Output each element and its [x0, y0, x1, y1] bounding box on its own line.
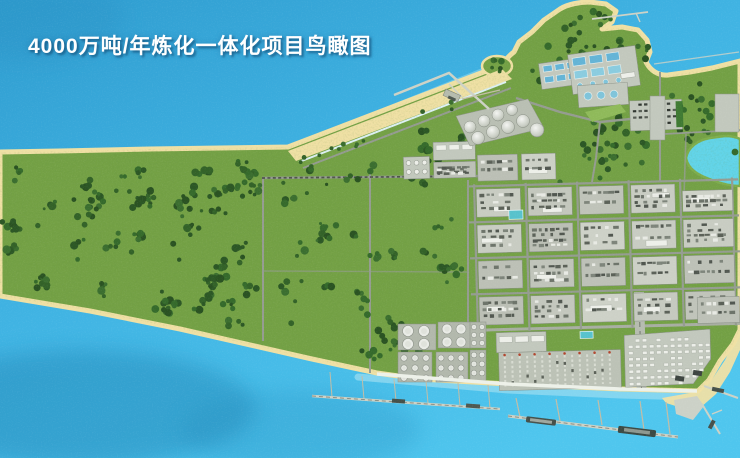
aerial-rendering: 4000万吨/年炼化一体化项目鸟瞰图 — [0, 0, 740, 458]
page-title: 4000万吨/年炼化一体化项目鸟瞰图 — [28, 30, 372, 60]
water-sparkle — [0, 0, 740, 458]
